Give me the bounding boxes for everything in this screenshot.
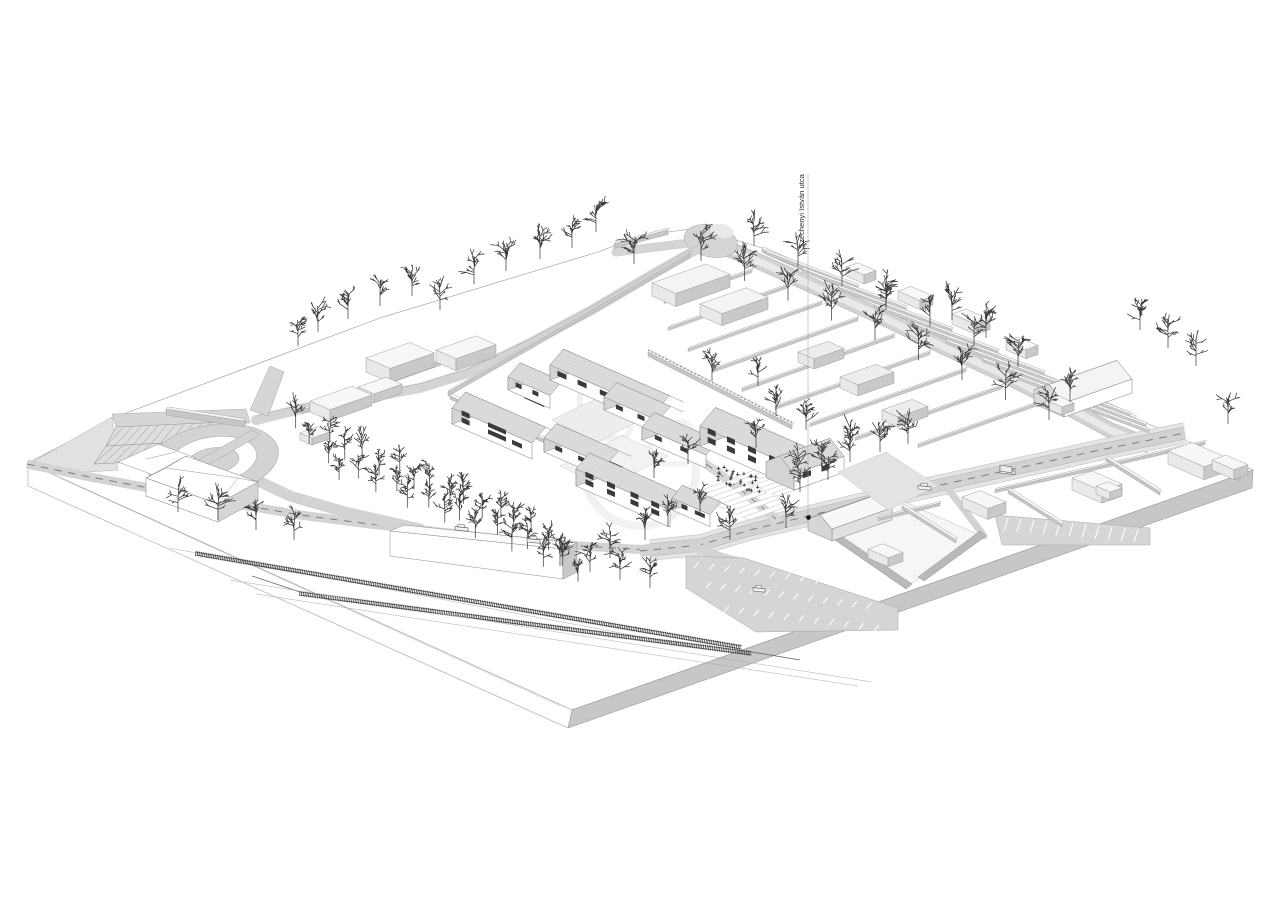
svg-text:Széchenyi István utca: Széchenyi István utca (797, 173, 806, 248)
